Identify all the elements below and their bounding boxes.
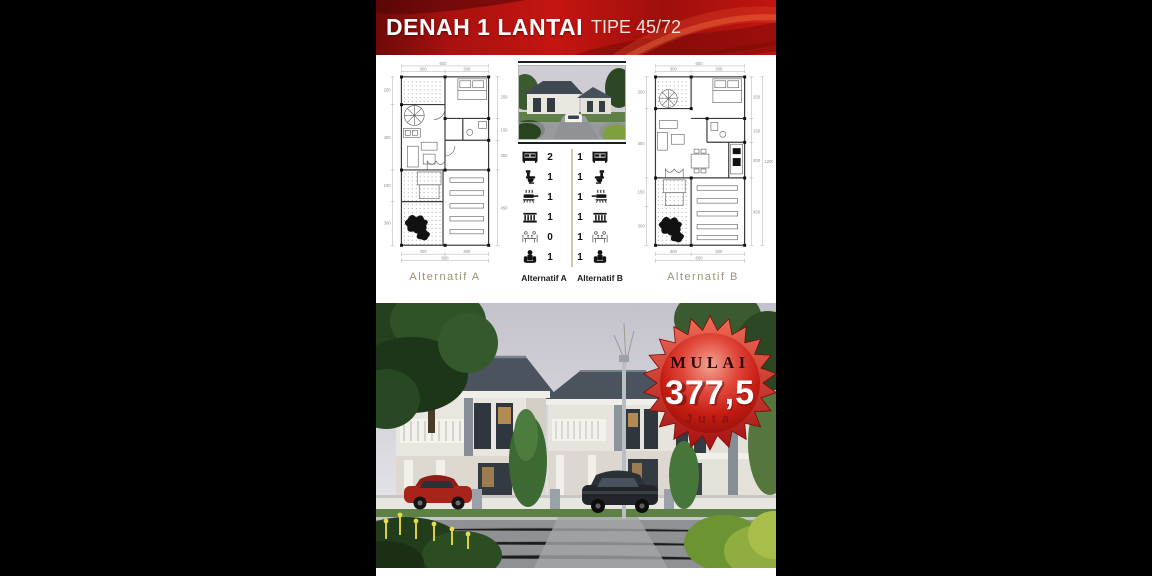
count-dining-b: 1 [577,232,583,243]
count-stove-b: 1 [577,192,583,203]
comparison-label-a: Alternatif A [516,273,572,283]
floor-plan-a: 600 300 300 300 300 600 250 450 150 300 … [376,55,514,303]
svg-text:150: 150 [500,127,508,132]
flyer-page: DENAH 1 LANTAI TIPE 45/72 600 300 300 30… [376,0,776,576]
floor-plans-section: 600 300 300 300 300 600 250 450 150 300 … [376,55,776,303]
railing-icon [591,208,609,226]
svg-text:300: 300 [638,223,646,228]
table-divider [571,149,573,267]
svg-text:150: 150 [384,183,392,188]
comparison-column: 2 1 1 1 1 1 [514,55,630,303]
bed-icon [521,148,539,166]
price-amount: 377,5 [665,374,755,412]
dining-table-icon [521,228,539,246]
svg-text:450: 450 [753,210,761,215]
plan-a-label: Alternatif A [409,271,480,283]
svg-text:300: 300 [420,66,428,71]
svg-text:300: 300 [753,158,761,163]
svg-text:300: 300 [500,153,508,158]
price-unit: Juta [685,412,735,426]
count-bed-b: 1 [577,152,583,163]
svg-text:300: 300 [463,249,471,254]
page-subtitle: TIPE 45/72 [591,17,681,38]
svg-text:600: 600 [695,256,703,261]
bed-icon [591,148,609,166]
svg-text:300: 300 [420,249,428,254]
count-railing-a: 1 [547,212,553,223]
svg-text:250: 250 [384,88,392,93]
stove-icon [521,188,539,206]
railing-icon [521,208,539,226]
count-toilet-a: 1 [547,172,553,183]
svg-text:150: 150 [638,190,646,195]
svg-text:300: 300 [670,66,678,71]
divider-line-bottom [518,142,626,144]
svg-text:250: 250 [500,95,508,100]
svg-text:600: 600 [441,256,449,261]
page-title: DENAH 1 LANTAI [386,14,583,41]
divider-line-top [518,61,626,63]
count-stove-a: 1 [547,192,553,203]
stove-icon [591,188,609,206]
count-dining-a: 0 [547,232,553,243]
svg-text:300: 300 [715,249,723,254]
svg-text:600: 600 [439,61,447,66]
header-band: DENAH 1 LANTAI TIPE 45/72 [376,0,776,55]
toilet-icon [591,168,609,186]
floor-plan-b: 600 300 300 300 300 600 250 450 150 300 … [630,55,776,303]
armchair-icon [521,248,539,266]
count-bed-a: 2 [547,152,553,163]
thumbnail-image [518,65,626,140]
svg-text:250: 250 [753,95,761,100]
house-rendering: MULAI 377,5 377,5 Juta [376,303,776,568]
svg-text:300: 300 [384,220,392,225]
comparison-table: 2 1 1 1 1 1 [518,147,626,267]
count-railing-b: 1 [577,212,583,223]
svg-text:450: 450 [384,135,392,140]
armchair-icon [591,248,609,266]
count-armchair-b: 1 [577,252,583,263]
count-armchair-a: 1 [547,252,553,263]
svg-text:450: 450 [638,141,646,146]
comparison-label-b: Alternatif B [572,273,628,283]
plan-b-drawing: 600 300 300 300 300 600 250 450 150 300 … [633,61,773,269]
plan-a-drawing: 600 300 300 300 300 600 250 450 150 300 … [379,61,511,269]
svg-text:150: 150 [753,128,761,133]
toilet-icon [521,168,539,186]
svg-text:300: 300 [463,66,471,71]
price-prefix: MULAI [670,353,749,372]
plan-b-label: Alternatif B [667,271,739,283]
svg-text:1200: 1200 [764,159,773,164]
svg-text:300: 300 [715,66,723,71]
svg-text:600: 600 [695,61,703,66]
svg-text:250: 250 [638,90,646,95]
svg-text:450: 450 [500,206,508,211]
count-toilet-b: 1 [577,172,583,183]
svg-text:300: 300 [670,249,678,254]
conifer-tree [669,441,699,509]
dining-table-icon [591,228,609,246]
